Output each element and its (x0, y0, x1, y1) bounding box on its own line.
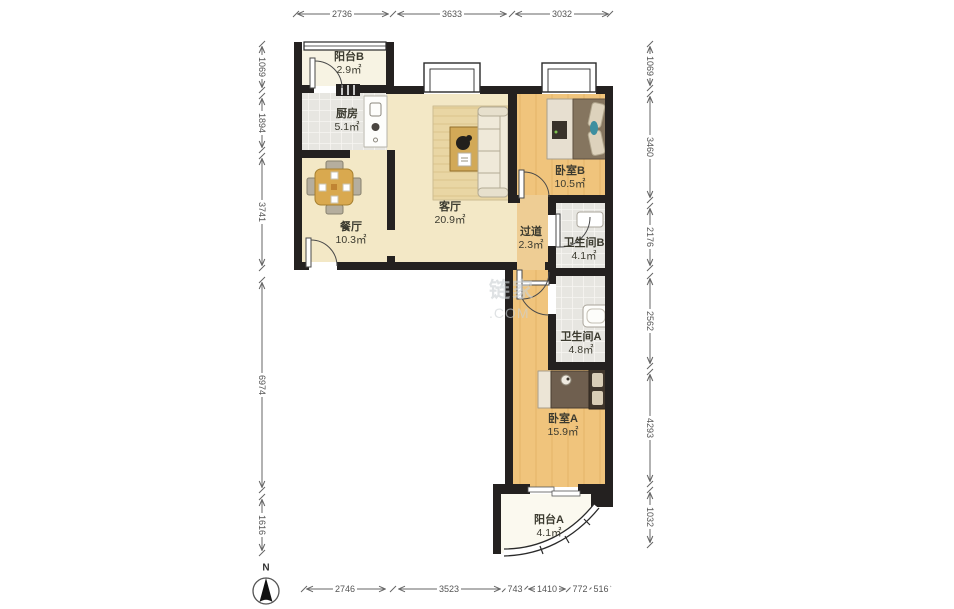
dim-right-5: 4293 (645, 416, 655, 440)
room-name: 卧室B (555, 165, 586, 178)
room-name: 客厅 (435, 201, 466, 214)
room-name: 卧室A (548, 413, 579, 426)
room-label-bathroom-a: 卫生间A 4.8㎡ (561, 331, 602, 357)
bedroom-a-bed (538, 369, 607, 409)
dim-right-3: 2176 (645, 225, 655, 249)
dim-top-3: 3032 (550, 9, 574, 19)
compass-graphic (253, 578, 279, 604)
dim-right-2: 3460 (645, 135, 655, 159)
room-area: 10.5㎡ (555, 178, 586, 191)
room-label-bedroom-a: 卧室A 15.9㎡ (548, 413, 579, 439)
room-name: 过道 (518, 226, 543, 239)
floorplan-drawing (0, 0, 954, 609)
compass-north-label: N (262, 563, 269, 574)
bedroom-b-bay-window (542, 63, 596, 92)
coffee-table (450, 127, 480, 171)
dim-right-1: 1069 (645, 54, 655, 78)
dim-right-6: 1032 (645, 505, 655, 529)
room-name: 厨房 (334, 108, 359, 121)
room-name: 阳台B (334, 51, 364, 64)
dim-left-4: 6974 (257, 373, 267, 397)
dim-left-2: 1894 (257, 111, 267, 135)
room-area: 20.9㎡ (435, 214, 466, 227)
dim-right-4: 2562 (645, 309, 655, 333)
room-area: 4.1㎡ (564, 250, 605, 263)
room-label-kitchen: 厨房 5.1㎡ (334, 108, 359, 134)
room-area: 10.3㎡ (336, 234, 367, 247)
dim-top-1: 2736 (330, 9, 354, 19)
dim-bottom-3: 743 (505, 584, 524, 594)
dim-bottom-2: 3523 (437, 584, 461, 594)
room-label-balcony-a: 阳台A 4.1㎡ (534, 514, 564, 540)
room-name: 卫生间A (561, 331, 602, 344)
room-area: 2.3㎡ (518, 239, 543, 252)
room-label-balcony-b: 阳台B 2.9㎡ (334, 51, 364, 77)
room-area: 4.1㎡ (534, 527, 564, 540)
room-area: 2.9㎡ (334, 64, 364, 77)
room-name: 阳台A (534, 514, 564, 527)
room-label-living: 客厅 20.9㎡ (435, 201, 466, 227)
room-label-bathroom-b: 卫生间B 4.1㎡ (564, 237, 605, 263)
dim-bottom-6: 516 (591, 584, 610, 594)
dim-bottom-5: 772 (570, 584, 589, 594)
room-name: 卫生间B (564, 237, 605, 250)
room-name: 餐厅 (336, 221, 367, 234)
room-label-dining: 餐厅 10.3㎡ (336, 221, 367, 247)
sofa (478, 107, 508, 197)
dim-left-1: 1069 (257, 55, 267, 79)
living-bay-window (424, 63, 480, 92)
room-area: 5.1㎡ (334, 121, 359, 134)
room-area: 4.8㎡ (561, 344, 602, 357)
dim-left-5: 1616 (257, 513, 267, 537)
room-label-hallway: 过道 2.3㎡ (518, 226, 543, 252)
dim-left-3: 3741 (257, 200, 267, 224)
dim-top-2: 3633 (440, 9, 464, 19)
kitchen-balcony-window (336, 84, 360, 96)
dim-bottom-1: 2746 (333, 584, 357, 594)
balcony-b-window (304, 42, 386, 50)
floorplan-canvas: 阳台B 2.9㎡ 厨房 5.1㎡ 餐厅 10.3㎡ 客厅 20.9㎡ 卧室B 1… (0, 0, 954, 609)
room-label-bedroom-b: 卧室B 10.5㎡ (555, 165, 586, 191)
room-area: 15.9㎡ (548, 426, 579, 439)
dim-bottom-4: 1410 (535, 584, 559, 594)
kitchen-counter (364, 96, 387, 147)
bedroom-b-bed (547, 99, 606, 159)
